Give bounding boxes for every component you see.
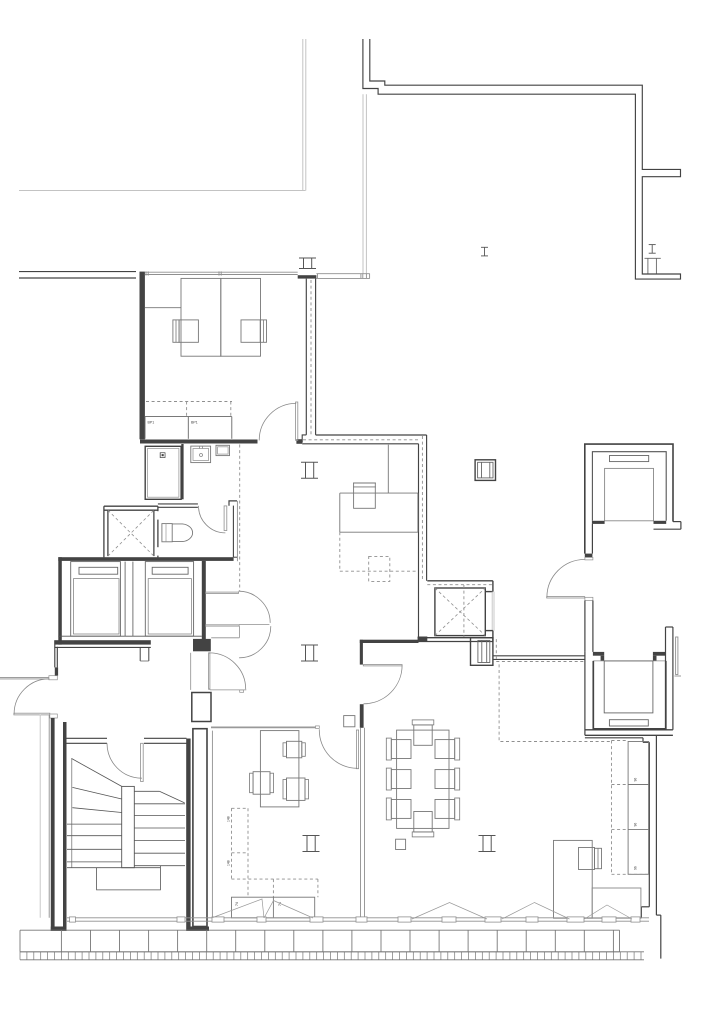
svg-text:96: 96 <box>634 823 638 827</box>
svg-text:96: 96 <box>634 778 638 782</box>
svg-text:BP1: BP1 <box>148 421 155 425</box>
svg-text:74: 74 <box>235 902 239 906</box>
svg-text:148: 148 <box>227 816 231 822</box>
svg-text:148: 148 <box>227 860 231 866</box>
svg-text:BP1: BP1 <box>191 421 198 425</box>
svg-text:96: 96 <box>634 866 638 870</box>
